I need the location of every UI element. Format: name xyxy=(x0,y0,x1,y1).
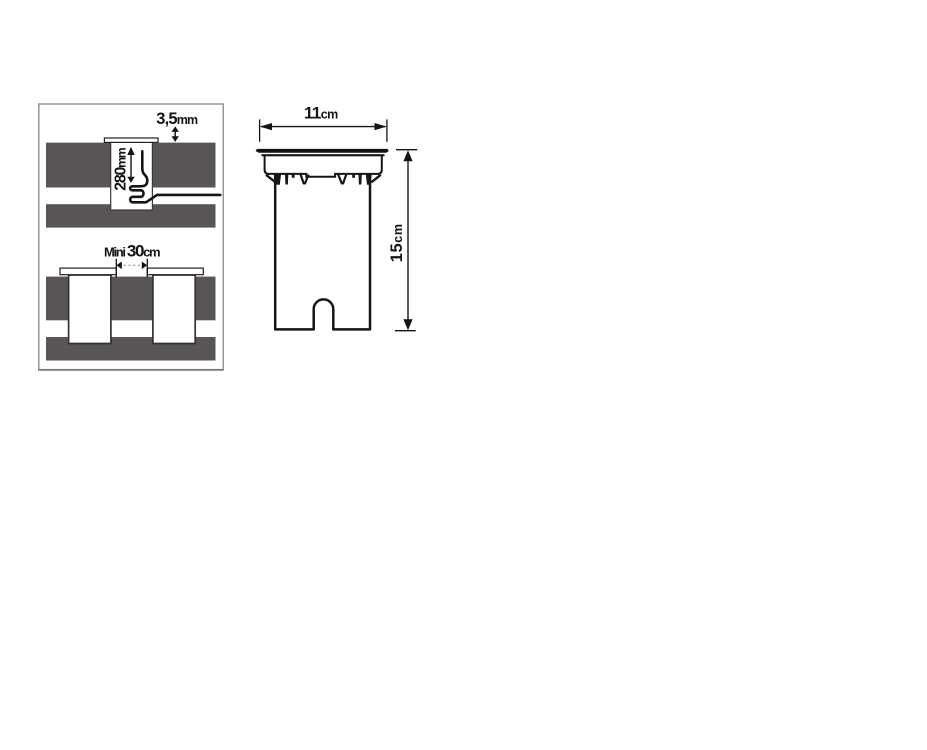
svg-text:15cm: 15cm xyxy=(388,224,406,262)
svg-text:Mini 30cm: Mini 30cm xyxy=(104,242,161,261)
svg-text:3,5mm: 3,5mm xyxy=(156,110,198,128)
svg-text:280mm: 280mm xyxy=(112,147,129,191)
